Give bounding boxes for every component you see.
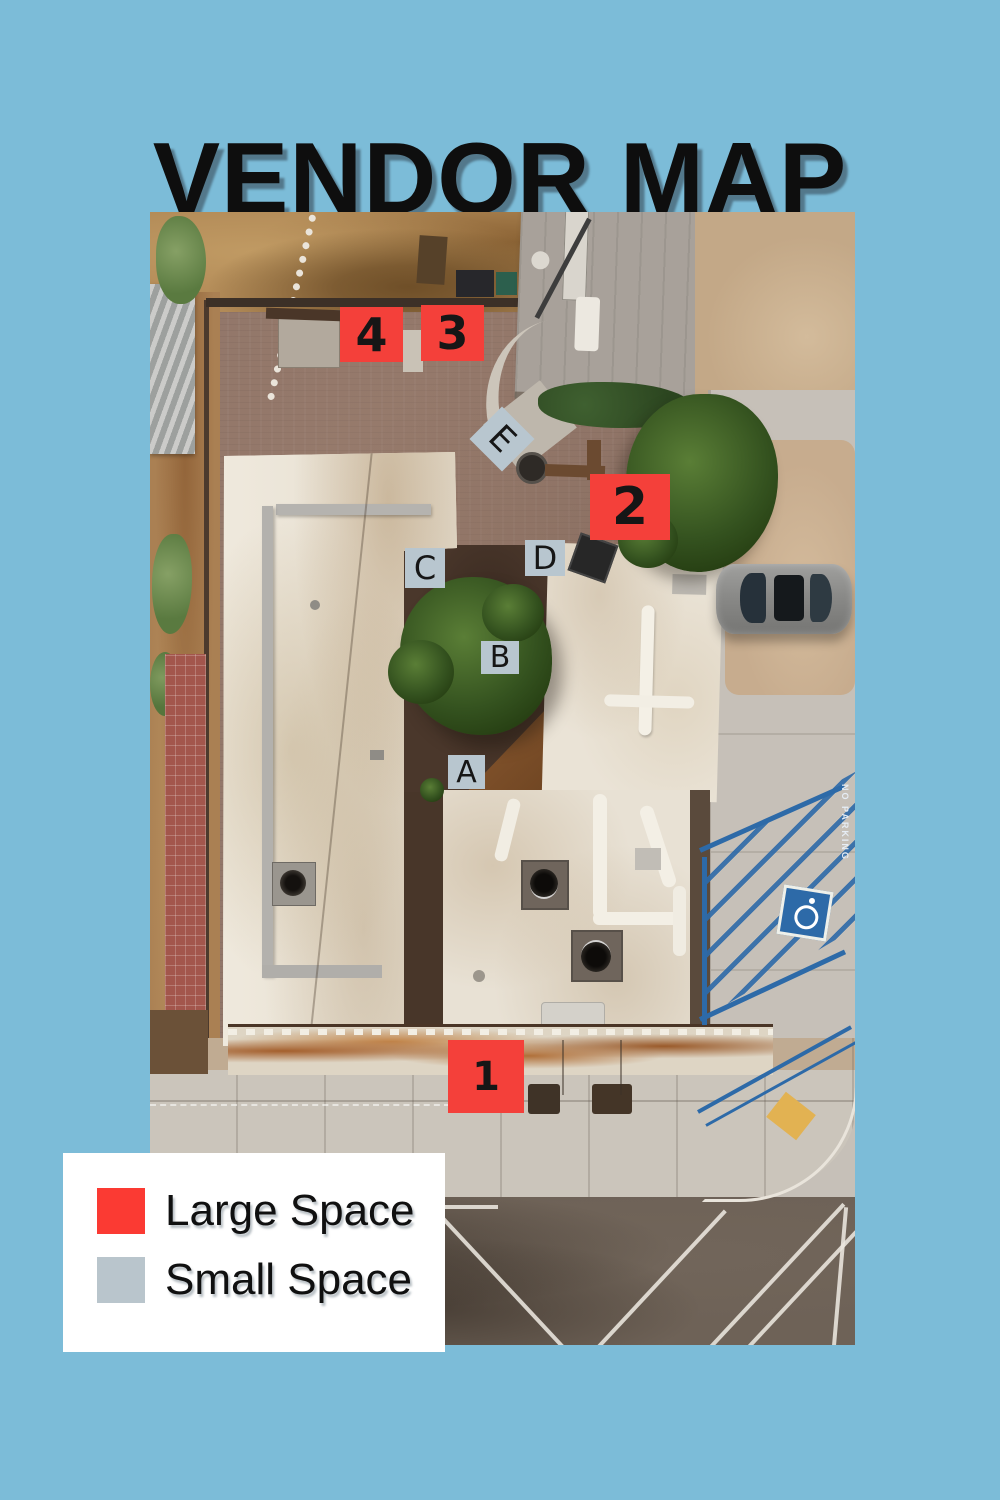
road-marking (679, 1203, 846, 1345)
roof-unit (635, 848, 661, 870)
car-rear-window (810, 574, 832, 622)
legend-label-large: Large Space (165, 1186, 415, 1236)
hvac-fan (581, 940, 611, 972)
vendor-space-4: 4 (340, 307, 403, 362)
awning-post (620, 1040, 622, 1095)
legend-label-small: Small Space (165, 1255, 412, 1305)
roof-duct (673, 886, 686, 956)
roof-duct (493, 797, 521, 862)
large-space-swatch (97, 1188, 145, 1234)
metal-roof (150, 284, 195, 454)
vendor-space-A: A (448, 755, 485, 789)
roof-unit (672, 574, 707, 595)
parked-car (716, 564, 852, 634)
fire-pit (516, 452, 548, 484)
vendor-space-1: 1 (448, 1040, 524, 1113)
concrete-pad (403, 330, 423, 372)
roof-cable (309, 452, 373, 1039)
debris-corner (150, 1010, 208, 1074)
roof-duct (638, 804, 678, 889)
roof-duct (262, 965, 382, 978)
planter-box (592, 1084, 632, 1114)
dirt-debris (416, 235, 447, 285)
road-marking (434, 1209, 580, 1345)
hatch-boundary (702, 857, 707, 1025)
roof-pipe (638, 605, 654, 735)
planter-box (528, 1084, 560, 1114)
small-space-swatch (97, 1257, 145, 1303)
vendor-space-3: 3 (421, 305, 484, 361)
handicap-symbol-icon (776, 884, 833, 941)
legend-row-small: Small Space (97, 1255, 412, 1305)
roof-duct (593, 912, 685, 925)
roof-vent (370, 750, 384, 760)
roof-duct (593, 794, 607, 919)
handicap-wheel (793, 904, 820, 931)
roof-vent (310, 600, 320, 610)
no-parking-text: NO PARKING (840, 784, 850, 861)
tree-icon (388, 640, 454, 704)
fence (206, 298, 536, 307)
roof-pipe (604, 694, 694, 708)
red-tile-walkway (165, 654, 206, 1016)
legend-row-large: Large Space (97, 1186, 415, 1236)
roof-vent (473, 970, 485, 982)
hvac-fan (280, 870, 306, 896)
vendor-space-2: 2 (590, 474, 670, 540)
tan-ground (695, 212, 855, 420)
bottom-building-roof (443, 790, 690, 1042)
legend: Large Space Small Space (63, 1153, 445, 1352)
awning-post (562, 1040, 564, 1095)
awning-trim (228, 1029, 773, 1035)
vendor-space-B: B (481, 641, 519, 674)
bush-icon (420, 778, 444, 802)
handicap-head (809, 898, 816, 905)
vendor-space-D: D (525, 540, 565, 576)
tree-icon (482, 584, 544, 642)
cactus-icon (156, 216, 206, 304)
sandwich-board (567, 532, 618, 583)
hvac-fan (530, 869, 558, 899)
dashed-curb-line (150, 1104, 450, 1106)
car-sunroof (774, 575, 804, 621)
car-windshield (740, 573, 766, 623)
trash-bin (456, 270, 494, 297)
vendor-map-poster: VENDOR MAP (0, 0, 1000, 1500)
roof-duct (276, 504, 431, 515)
right-building-roof (542, 543, 724, 802)
vendor-space-C: C (405, 548, 445, 588)
road-marking (577, 1210, 727, 1345)
road-marking (832, 1207, 848, 1345)
roof-vent (531, 251, 550, 270)
trash-bin-green (496, 272, 517, 295)
